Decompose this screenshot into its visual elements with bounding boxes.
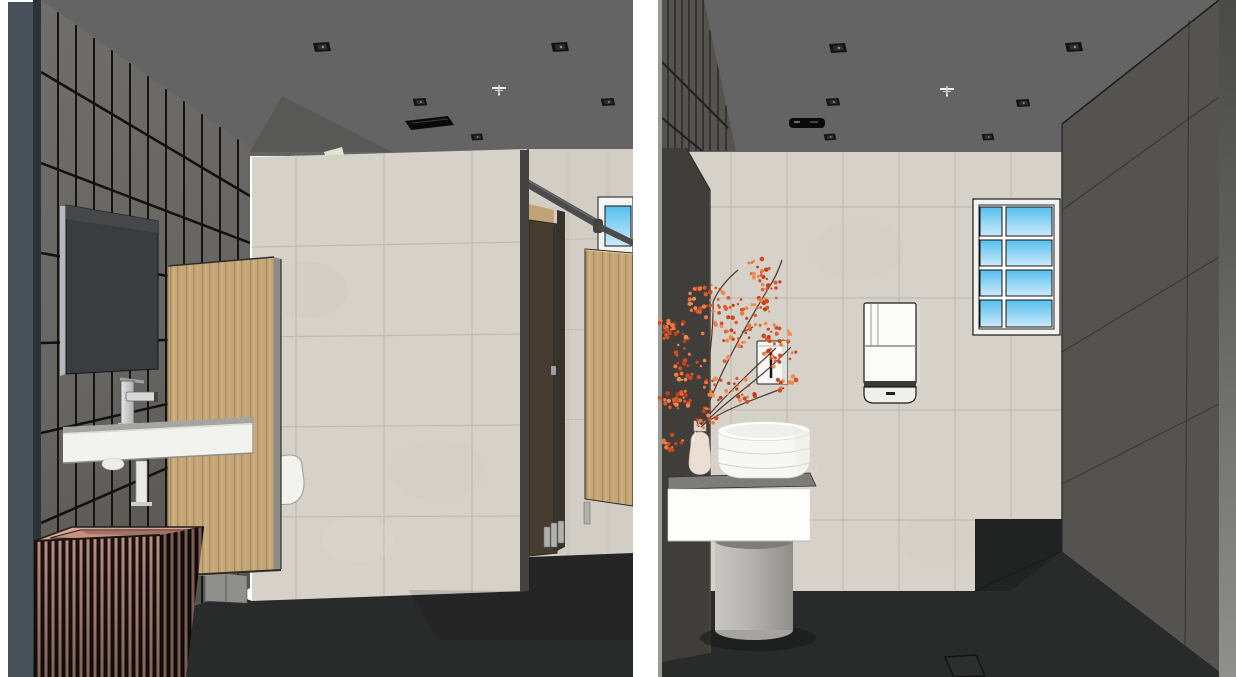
window-blue-glass: [973, 199, 1060, 335]
door-latch: [551, 366, 556, 375]
partition-edge: [520, 150, 529, 592]
right-view-render: [658, 0, 1236, 677]
beige-tile-partition: [252, 149, 527, 601]
gray-pedestal: [715, 533, 793, 640]
slatted-wood-basket: [34, 527, 204, 677]
vessel-sink: [718, 422, 810, 479]
toilet-stall-wood-door: [585, 249, 633, 506]
toilet-stall-dark-door: [529, 220, 557, 556]
right-wall-edge: [658, 0, 662, 677]
restroom-render-canvas: [0, 0, 1236, 677]
toilet-stalls: [525, 149, 633, 557]
right-air-vent-icon: [789, 118, 825, 128]
hand-dryer: [864, 303, 920, 403]
sink-trap: [102, 458, 124, 470]
drain-pipe: [136, 461, 147, 504]
stall-post: [557, 210, 565, 551]
white-counter: [668, 473, 816, 541]
soap-dispenser: [757, 341, 787, 384]
wall-mirror: [60, 205, 158, 376]
left-view-render: [8, 0, 633, 677]
